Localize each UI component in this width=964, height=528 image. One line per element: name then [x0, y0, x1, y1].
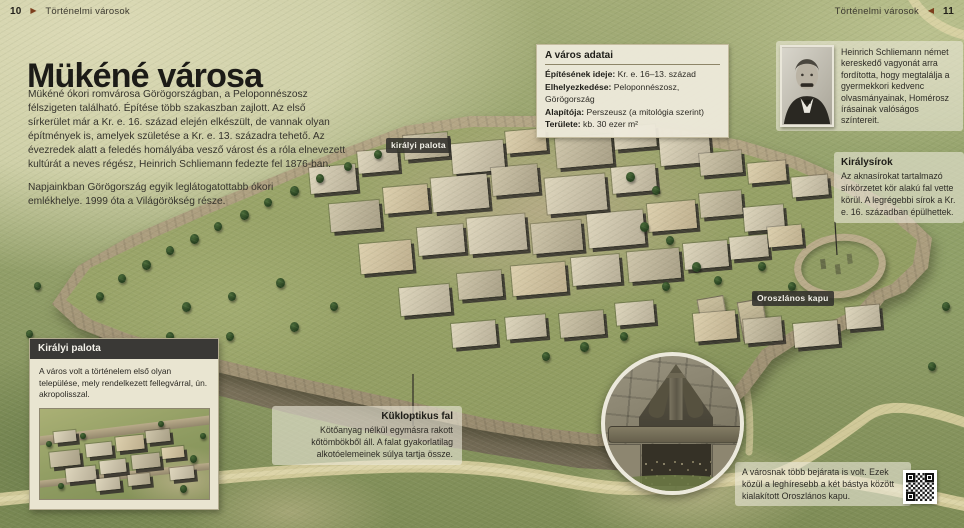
qr-finder-icon — [906, 473, 915, 482]
lion-gate-photo-inset — [601, 352, 744, 495]
intro-text: Mükéné ókori romvárosa Görögországban, a… — [28, 88, 348, 218]
cyclopean-wall-text: Kötőanyag nélkül egymásra rakott kőtömbö… — [281, 424, 453, 460]
building — [99, 458, 126, 474]
relief-column — [670, 378, 683, 420]
arrow-left-icon: ◀ — [928, 6, 934, 15]
cypress-tree — [180, 485, 187, 493]
building — [169, 465, 194, 479]
facts-value: Kr. e. 16–13. század — [618, 69, 696, 79]
building — [127, 472, 150, 485]
building — [53, 429, 76, 442]
lion-figure-left — [647, 381, 671, 420]
book-spread: 10 ▶ Történelmi városok Történelmi város… — [0, 0, 964, 528]
qr-pattern — [906, 473, 934, 501]
building — [161, 445, 184, 458]
palace-render-image — [39, 408, 210, 500]
page-number-left: 10 — [10, 6, 22, 17]
running-head-left: 10 ▶ Történelmi városok — [10, 6, 130, 17]
page-number-right: 11 — [943, 6, 954, 17]
section-title-left: Történelmi városok — [45, 6, 129, 17]
intro-paragraph-1: Mükéné ókori romvárosa Görögországban, a… — [28, 88, 348, 172]
facts-label: Alapítója: — [545, 107, 584, 117]
arrow-right-icon: ▶ — [30, 6, 36, 15]
cypress-tree — [58, 483, 64, 490]
facts-row-founder: Alapítója: Perszeusz (a mitológia szerin… — [545, 106, 720, 119]
schliemann-text: Heinrich Schliemann német kereskedő vagy… — [841, 45, 959, 127]
facts-label: Elhelyezkedése: — [545, 82, 611, 92]
schliemann-card: Heinrich Schliemann német kereskedő vagy… — [776, 41, 963, 131]
qr-finder-icon — [925, 473, 934, 482]
building — [145, 428, 170, 442]
running-head-right: Történelmi városok ◀ 11 — [835, 6, 954, 17]
lion-figure-right — [681, 381, 705, 420]
royal-palace-box-title: Királyi palota — [30, 339, 218, 359]
facts-value: kb. 30 ezer m² — [583, 119, 638, 129]
palace-map-label: királyi palota — [386, 138, 451, 153]
royal-tombs-callout: Királysírok Az aknasírokat tartalmazó sí… — [834, 152, 964, 223]
royal-tombs-text: Az aknasírokat tartalmazó sírkörzetet kö… — [841, 170, 957, 218]
facts-row-area: Területe: kb. 30 ezer m² — [545, 118, 720, 131]
lion-relief — [639, 364, 713, 426]
qr-code — [903, 470, 937, 504]
royal-palace-box: Királyi palota A város volt a történelem… — [29, 338, 219, 510]
gate-lintel — [608, 426, 744, 443]
building — [131, 452, 160, 469]
cypress-tree — [190, 455, 197, 463]
facts-row-built: Építésének ideje: Kr. e. 16–13. század — [545, 68, 720, 81]
building — [115, 434, 144, 451]
facts-box-title: A város adatai — [545, 50, 720, 65]
facts-row-location: Elhelyezkedése: Peloponnészosz, Görögors… — [545, 81, 720, 106]
city-facts-box: A város adatai Építésének ideje: Kr. e. … — [536, 44, 729, 138]
facts-label: Területe: — [545, 119, 581, 129]
cypress-tree — [46, 441, 52, 448]
facts-value: Perszeusz (a mitológia szerint) — [587, 107, 705, 117]
qr-finder-icon — [906, 492, 915, 501]
entrances-note-text: A városnak több bejárata is volt. Ezek k… — [742, 466, 904, 502]
entrances-note: A városnak több bejárata is volt. Ezek k… — [735, 462, 911, 506]
facts-label: Építésének ideje: — [545, 69, 615, 79]
building — [49, 449, 80, 467]
royal-palace-box-text: A város volt a történelem első olyan tel… — [39, 366, 209, 401]
royal-tombs-title: Királysírok — [841, 157, 957, 168]
building — [85, 441, 112, 457]
building — [95, 476, 120, 490]
schliemann-portrait — [780, 45, 834, 127]
building — [65, 465, 96, 482]
cyclopean-wall-title: Kükloptikus fal — [281, 411, 453, 422]
cyclopean-wall-callout: Kükloptikus fal Kötőanyag nélkül egymásr… — [272, 406, 462, 465]
royal-palace-box-body: A város volt a történelem első olyan tel… — [30, 359, 218, 509]
lion-gate-map-label: Oroszlános kapu — [752, 291, 834, 306]
section-title-right: Történelmi városok — [835, 6, 919, 17]
cypress-tree — [200, 433, 206, 440]
intro-paragraph-2: Napjainkban Görögország egyik leglátogat… — [28, 181, 280, 209]
